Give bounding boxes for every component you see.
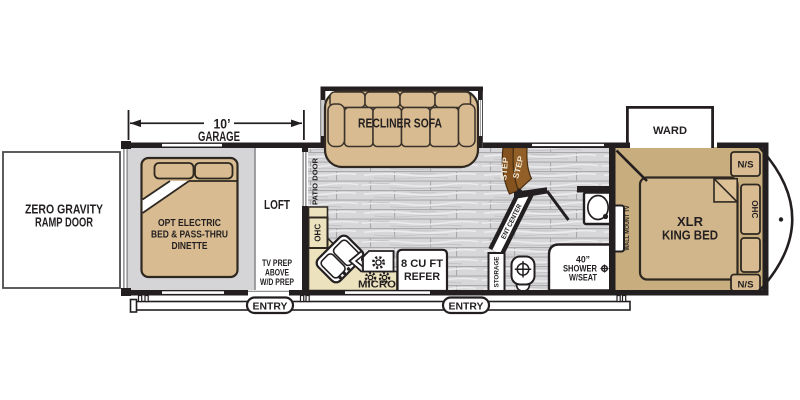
svg-text:W/D PREP: W/D PREP [260,277,294,287]
svg-text:RAMP DOOR: RAMP DOOR [35,215,93,230]
svg-text:DINETTE: DINETTE [172,241,208,252]
svg-text:WALL MOUNT TV: WALL MOUNT TV [624,205,631,251]
svg-text:LOFT: LOFT [264,197,290,212]
svg-text:N/S: N/S [738,160,754,170]
svg-text:PATIO DOOR: PATIO DOOR [311,157,320,205]
svg-text:XLR: XLR [677,215,703,229]
svg-text:GARAGE: GARAGE [198,129,240,144]
svg-text:OPT ELECTRIC: OPT ELECTRIC [158,218,221,229]
svg-text:WARD: WARD [653,125,687,137]
svg-text:MICRO: MICRO [358,279,396,291]
svg-text:W/SEAT: W/SEAT [569,273,598,283]
svg-text:ENTRY: ENTRY [449,300,484,312]
svg-text:OHC: OHC [313,224,323,242]
svg-text:N/S: N/S [738,280,754,290]
svg-text:KING BED: KING BED [662,229,718,243]
svg-text:BED & PASS-THRU: BED & PASS-THRU [151,230,228,241]
svg-text:ENTRY: ENTRY [253,300,288,312]
svg-text:ABOVE: ABOVE [265,268,289,278]
svg-text:REFER: REFER [404,271,440,283]
svg-text:RECLINER SOFA: RECLINER SOFA [358,117,442,131]
svg-text:OHC: OHC [750,200,760,218]
svg-text:STORAGE: STORAGE [494,256,501,287]
svg-text:TV PREP: TV PREP [262,258,292,268]
svg-text:8 CU FT: 8 CU FT [401,258,443,270]
